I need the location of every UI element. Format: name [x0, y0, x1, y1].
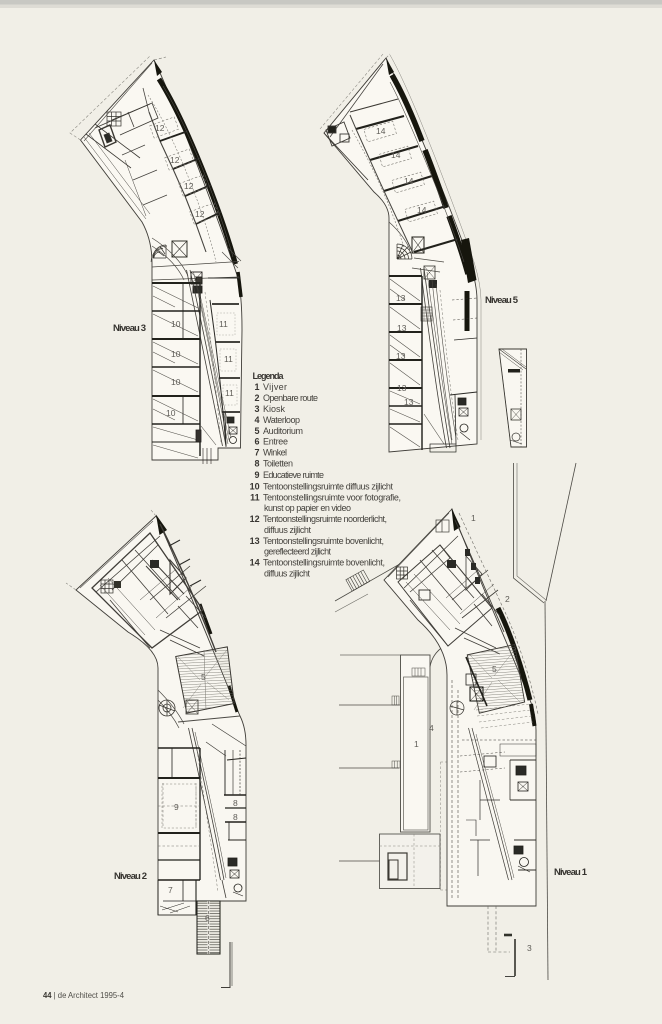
svg-text:2: 2: [254, 393, 259, 403]
svg-text:13: 13: [404, 397, 414, 407]
svg-text:14: 14: [417, 205, 427, 215]
svg-text:Winkel: Winkel: [263, 448, 287, 458]
svg-text:Niveau 5: Niveau 5: [485, 295, 519, 306]
svg-text:3: 3: [254, 404, 259, 414]
svg-text:10: 10: [171, 349, 181, 359]
svg-text:7: 7: [168, 885, 173, 895]
svg-text:diffuus zijlicht: diffuus zijlicht: [264, 525, 311, 535]
svg-text:3: 3: [527, 943, 532, 953]
svg-text:14: 14: [404, 176, 414, 186]
svg-text:14: 14: [250, 558, 260, 568]
svg-text:6: 6: [254, 437, 259, 447]
svg-text:13: 13: [250, 536, 260, 546]
svg-text:5: 5: [254, 426, 259, 436]
svg-text:1: 1: [254, 382, 259, 392]
svg-text:8: 8: [233, 812, 238, 822]
svg-text:Niveau 1: Niveau 1: [554, 867, 588, 878]
svg-text:10: 10: [250, 482, 260, 492]
svg-text:Tentoonstellingsruimte diffuus: Tentoonstellingsruimte diffuus zijlicht: [263, 482, 393, 492]
svg-text:13: 13: [397, 383, 407, 393]
svg-text:Niveau 2: Niveau 2: [114, 871, 147, 882]
svg-text:Waterloop: Waterloop: [263, 415, 300, 425]
svg-text:9: 9: [254, 470, 259, 480]
svg-text:7: 7: [254, 448, 259, 458]
svg-text:11: 11: [224, 354, 233, 364]
svg-text:5: 5: [492, 664, 497, 674]
svg-text:13: 13: [397, 323, 407, 333]
svg-text:Tentoonstellingsruimte bovenli: Tentoonstellingsruimte bovenlicht,: [263, 536, 384, 546]
svg-text:Vijver: Vijver: [263, 382, 287, 392]
svg-text:6: 6: [205, 913, 210, 923]
svg-text:11: 11: [225, 388, 234, 398]
svg-text:8: 8: [233, 798, 238, 808]
svg-text:12: 12: [155, 123, 165, 133]
svg-text:12: 12: [250, 514, 260, 524]
svg-text:gereflecteerd zijlicht: gereflecteerd zijlicht: [264, 547, 331, 557]
svg-text:4: 4: [254, 415, 259, 425]
svg-text:5: 5: [201, 672, 206, 682]
svg-text:1: 1: [471, 513, 476, 523]
svg-text:Niveau 3: Niveau 3: [113, 323, 146, 334]
svg-text:Kiosk: Kiosk: [263, 404, 286, 414]
svg-text:Tentoonstellingsruimte bovenli: Tentoonstellingsruimte bovenlicht,: [263, 558, 385, 568]
svg-text:12: 12: [195, 209, 205, 219]
svg-text:11: 11: [250, 492, 260, 502]
svg-text:11: 11: [219, 319, 228, 329]
svg-text:44 | de Architect 1995-4: 44 | de Architect 1995-4: [43, 990, 124, 1000]
svg-text:Educatieve ruimte: Educatieve ruimte: [263, 470, 324, 480]
svg-text:4: 4: [429, 723, 434, 733]
svg-text:Legenda: Legenda: [253, 371, 285, 381]
svg-text:Openbare route: Openbare route: [263, 393, 318, 403]
svg-text:10: 10: [171, 377, 181, 387]
svg-text:10: 10: [166, 408, 176, 418]
svg-text:8: 8: [254, 459, 259, 469]
svg-text:9: 9: [174, 802, 179, 812]
svg-text:1: 1: [414, 739, 419, 749]
svg-text:Auditorium: Auditorium: [263, 426, 303, 436]
svg-text:13: 13: [396, 293, 406, 303]
svg-text:12: 12: [170, 155, 180, 165]
svg-text:Tentoonstellingsruimte voor fo: Tentoonstellingsruimte voor fotografie,: [263, 492, 401, 502]
svg-text:Entree: Entree: [263, 437, 288, 447]
svg-text:14: 14: [391, 150, 401, 160]
svg-text:Tentoonstellingsruimte noorder: Tentoonstellingsruimte noorderlicht,: [263, 514, 387, 524]
svg-text:Toiletten: Toiletten: [263, 459, 293, 469]
svg-text:13: 13: [396, 351, 406, 361]
svg-text:12: 12: [184, 181, 194, 191]
svg-text:kunst op papier en video: kunst op papier en video: [264, 503, 351, 513]
svg-text:14: 14: [376, 126, 386, 136]
svg-text:10: 10: [171, 319, 181, 329]
svg-text:2: 2: [505, 594, 510, 604]
svg-text:diffuus zijlicht: diffuus zijlicht: [264, 568, 310, 578]
